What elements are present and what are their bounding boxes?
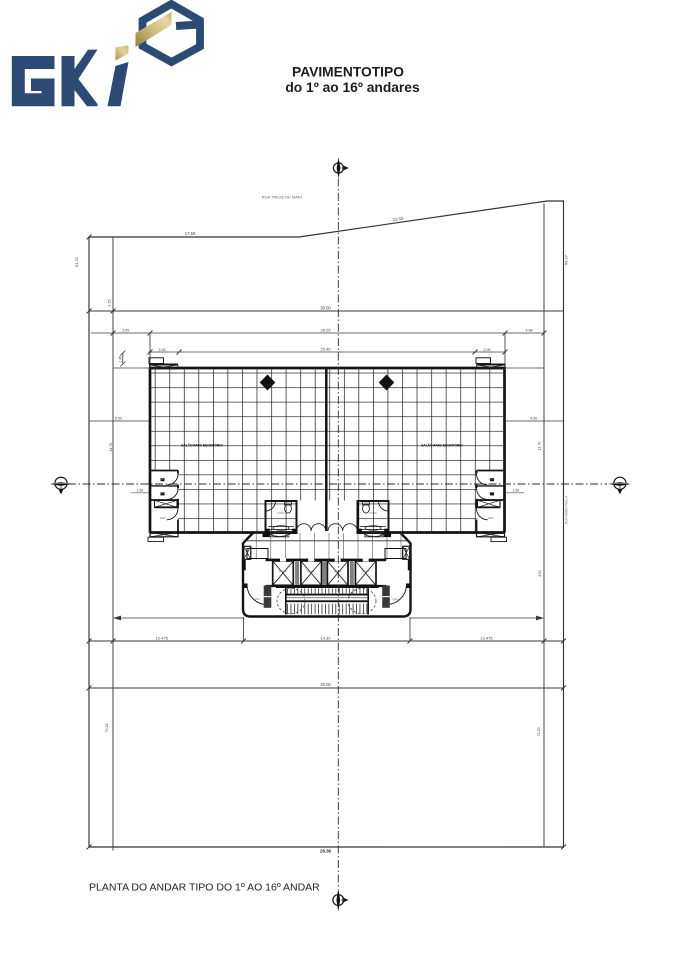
svg-text:4.50: 4.50: [538, 570, 542, 577]
svg-text:1.45: 1.45: [118, 356, 122, 363]
svg-text:17.50: 17.50: [185, 231, 196, 236]
svg-text:WC: WC: [161, 491, 166, 495]
svg-text:RUA TREZE DE MAIO: RUA TREZE DE MAIO: [262, 195, 302, 200]
svg-text:SALÃO PARA ESCRITÓRIO: SALÃO PARA ESCRITÓRIO: [181, 443, 223, 448]
svg-text:SALÃO PARA ESCRITÓRIO: SALÃO PARA ESCRITÓRIO: [421, 443, 463, 448]
svg-text:14.30: 14.30: [320, 636, 331, 641]
svg-text:4.15: 4.15: [108, 300, 112, 307]
svg-text:ELEV.: ELEV.: [307, 569, 315, 573]
svg-text:COPA: COPA: [369, 511, 377, 515]
svg-text:12.475: 12.475: [156, 636, 169, 641]
svg-text:ELEV.: ELEV.: [362, 569, 370, 573]
svg-text:4.50: 4.50: [530, 417, 537, 421]
svg-text:73.20: 73.20: [537, 728, 541, 737]
svg-text:22.50: 22.50: [392, 216, 404, 223]
svg-text:30.00: 30.00: [320, 682, 331, 687]
svg-text:26.36: 26.36: [320, 849, 332, 854]
svg-text:do 1º ao 16º andares: do 1º ao 16º andares: [285, 80, 420, 95]
svg-text:30.00: 30.00: [320, 306, 331, 311]
svg-text:2.05: 2.05: [159, 348, 166, 352]
svg-text:HALL: HALL: [254, 597, 261, 601]
svg-text:HALL: HALL: [393, 597, 400, 601]
svg-text:54.27: 54.27: [564, 254, 569, 265]
svg-text:DEP.: DEP.: [488, 516, 494, 520]
svg-text:A: A: [619, 485, 622, 489]
svg-text:39.25: 39.25: [320, 328, 331, 333]
svg-text:ELEV.: ELEV.: [279, 569, 287, 573]
svg-text:WC: WC: [161, 477, 166, 481]
svg-text:5.50: 5.50: [115, 417, 122, 421]
svg-text:RUA MARIA PAULA: RUA MARIA PAULA: [565, 495, 569, 524]
svg-text:11.70: 11.70: [538, 442, 542, 451]
svg-text:2.05: 2.05: [484, 348, 491, 352]
svg-text:11.70: 11.70: [109, 443, 113, 452]
svg-text:DEP.: DEP.: [160, 516, 166, 520]
svg-text:PLANTA DO ANDAR TIPO DO 1º AO: PLANTA DO ANDAR TIPO DO 1º AO 16º ANDAR: [89, 882, 320, 894]
svg-text:4.98: 4.98: [526, 329, 533, 333]
svg-text:25.40: 25.40: [320, 347, 331, 352]
svg-text:WC: WC: [489, 477, 494, 481]
svg-text:PAVIMENTOTIPO: PAVIMENTOTIPO: [292, 65, 404, 80]
svg-text:73.20: 73.20: [105, 724, 109, 733]
svg-text:2.05: 2.05: [122, 329, 129, 333]
svg-text:1.50: 1.50: [137, 489, 144, 493]
svg-text:A: A: [60, 485, 63, 489]
svg-text:1.50: 1.50: [513, 489, 520, 493]
svg-text:51.21: 51.21: [74, 256, 79, 267]
svg-text:COPA: COPA: [277, 511, 285, 515]
svg-text:WC: WC: [489, 491, 494, 495]
svg-text:12.475: 12.475: [480, 636, 493, 641]
